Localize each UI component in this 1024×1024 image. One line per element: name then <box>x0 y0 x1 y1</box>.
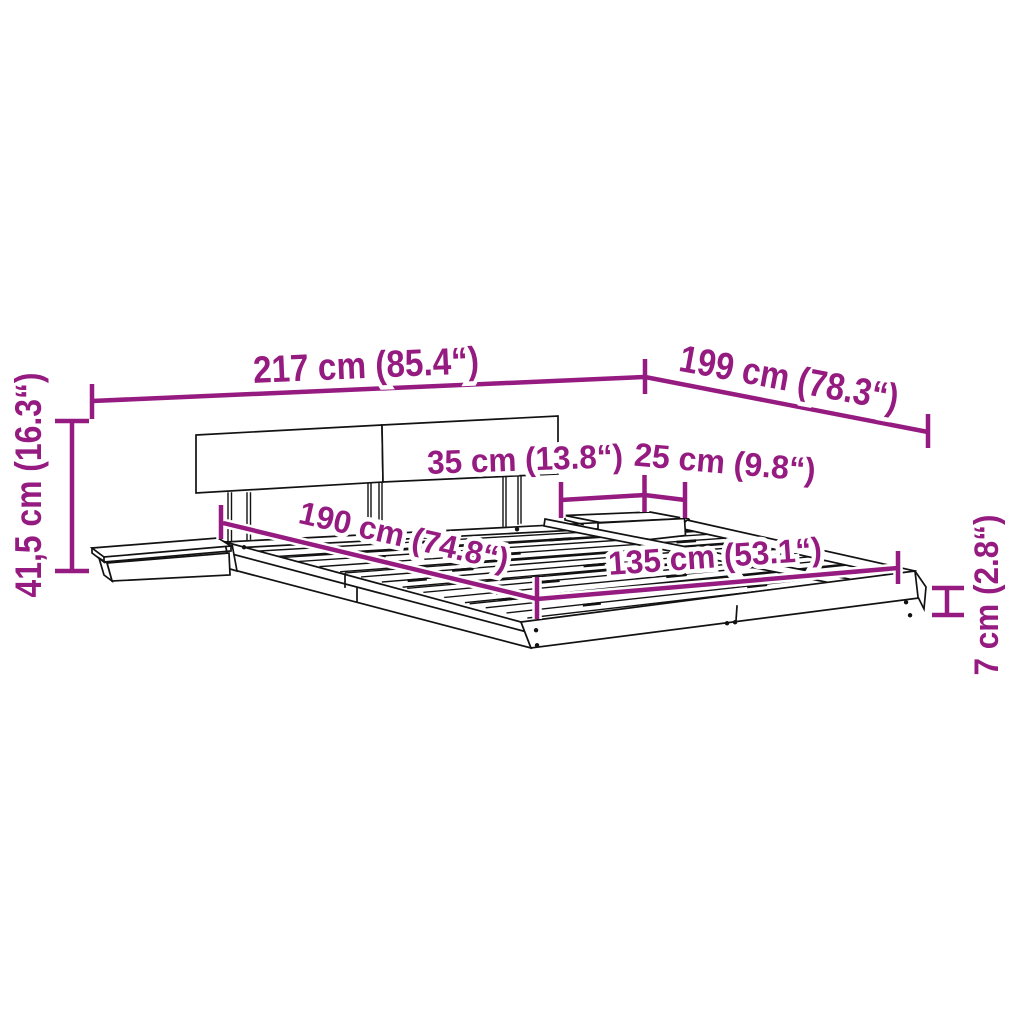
svg-text:35 cm (13.8“): 35 cm (13.8“) <box>426 437 623 481</box>
svg-text:41,5 cm (16.3“): 41,5 cm (16.3“) <box>8 373 49 598</box>
svg-text:7 cm (2.8“): 7 cm (2.8“) <box>968 515 1006 676</box>
